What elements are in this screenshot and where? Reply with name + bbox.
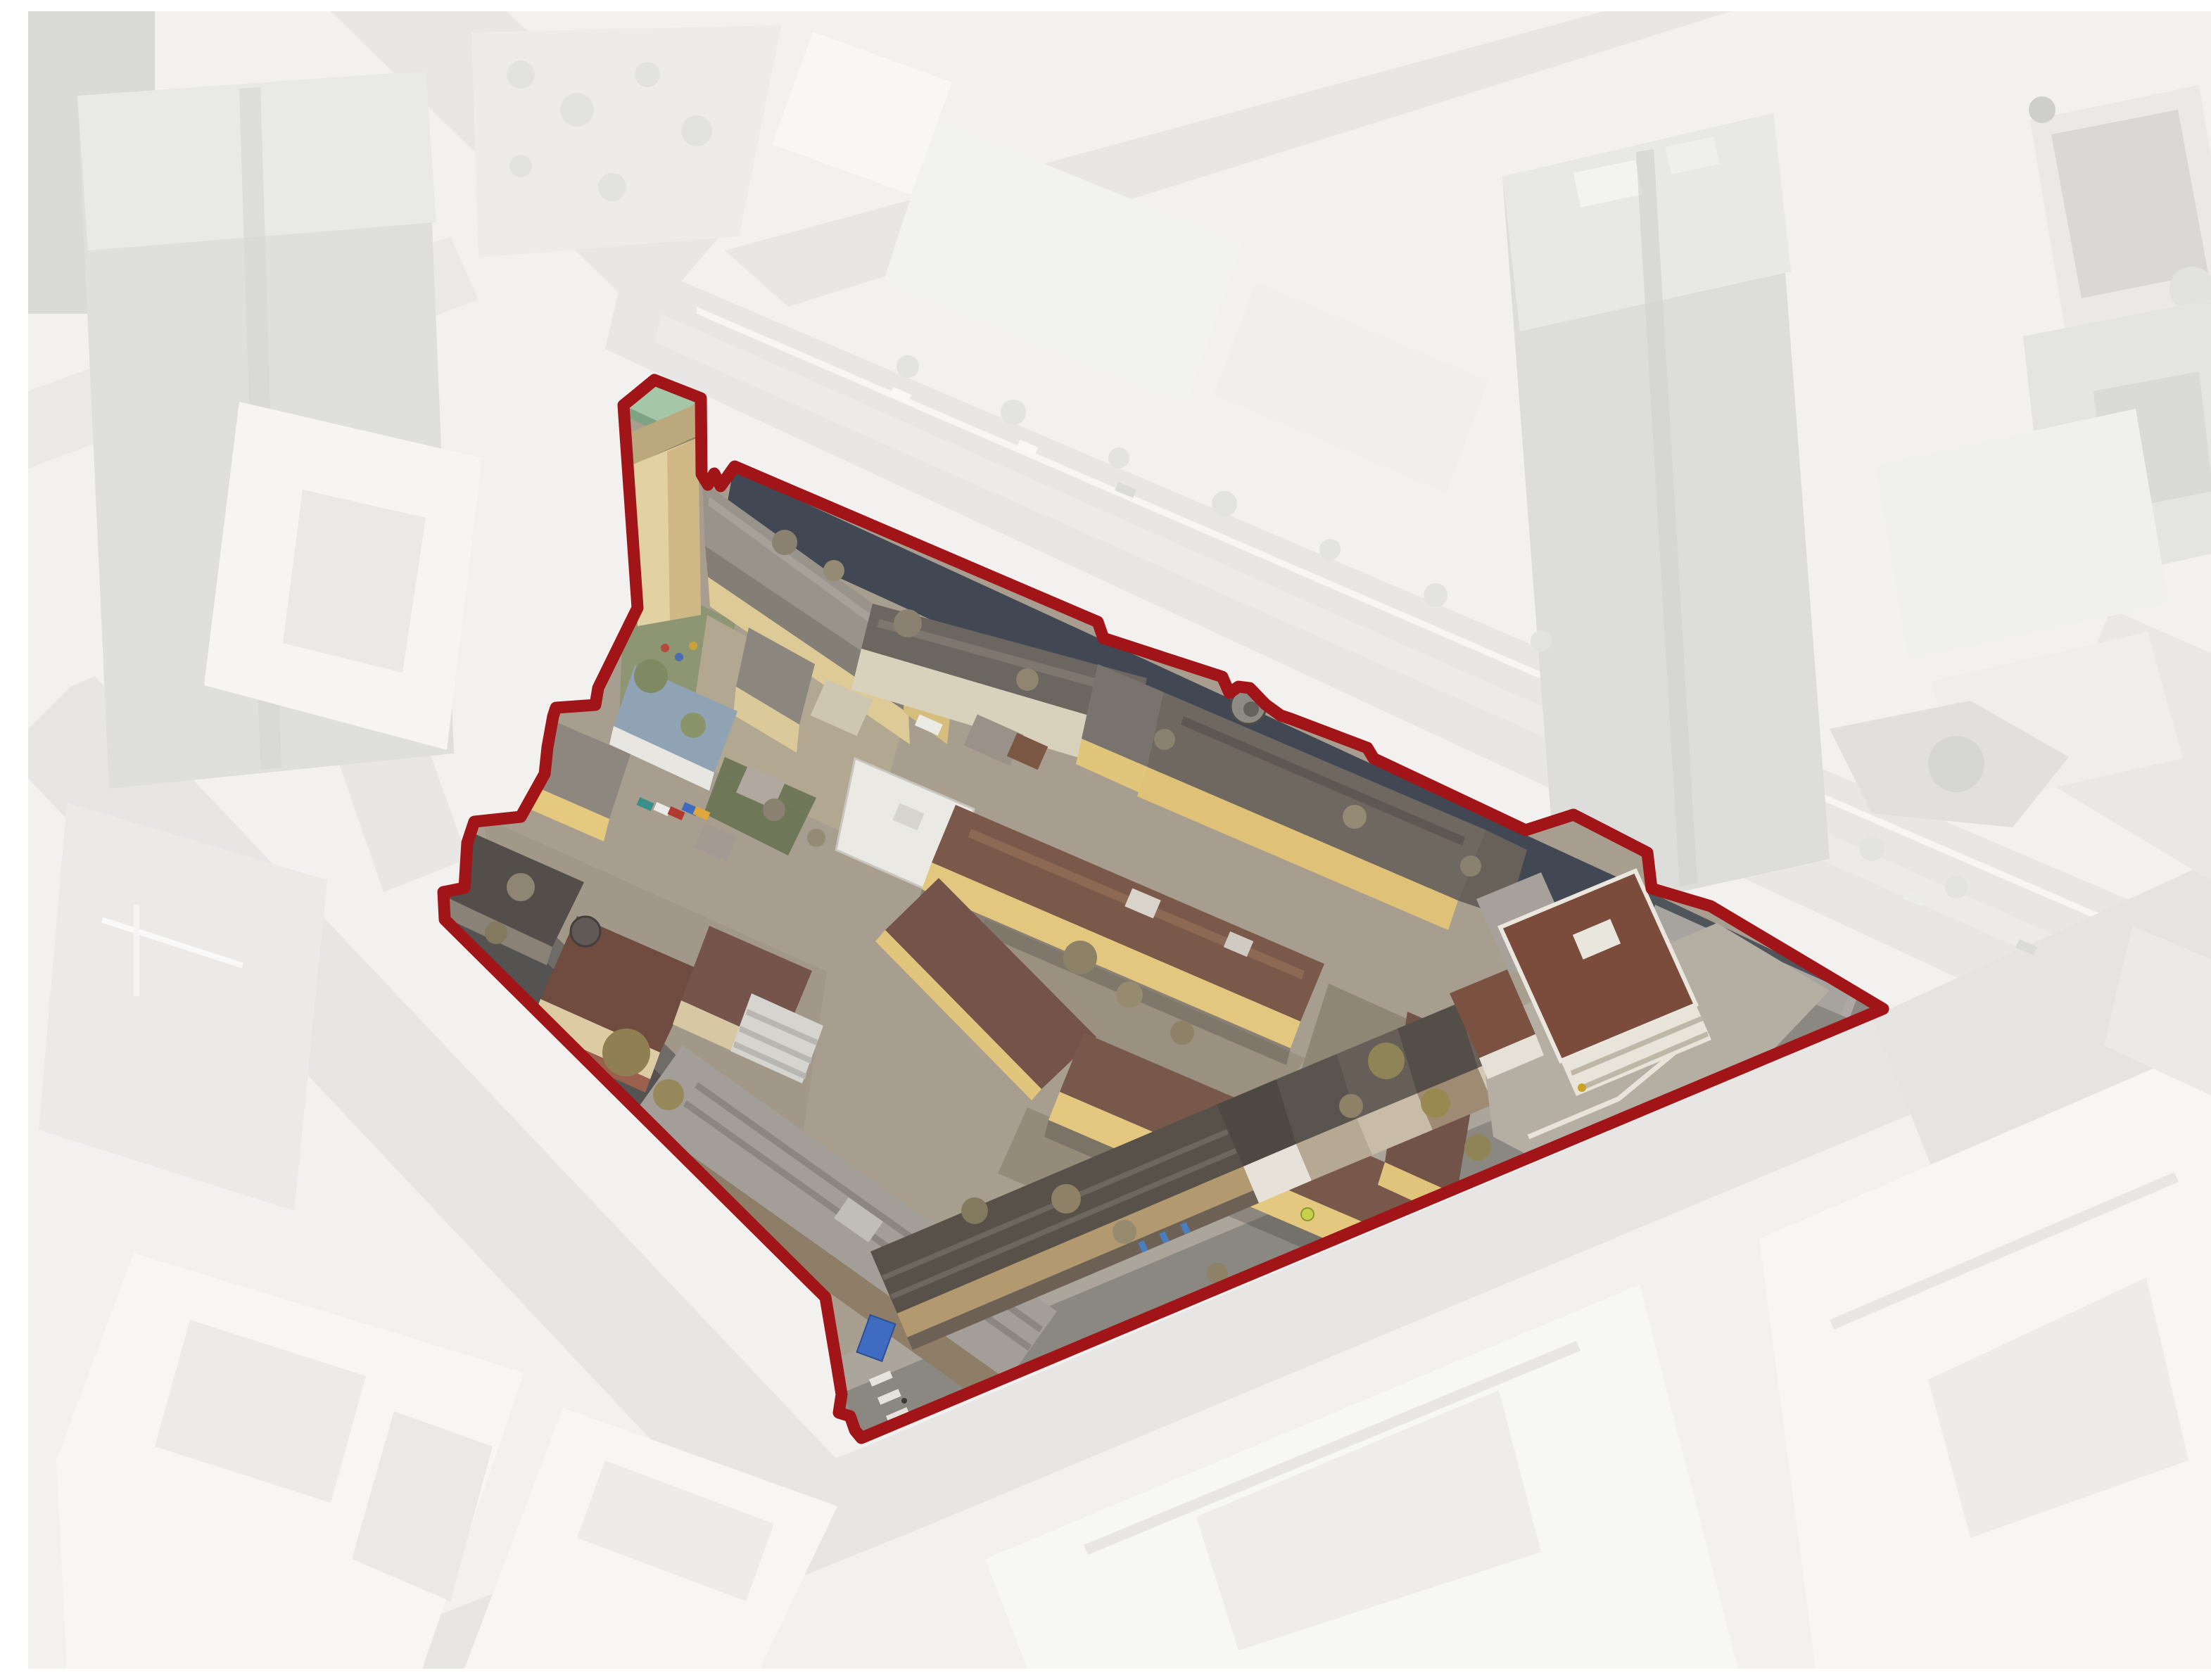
- advertising-column: [1301, 1208, 1314, 1221]
- tree: [1339, 1094, 1363, 1118]
- tree: [1464, 1134, 1491, 1161]
- tree: [1421, 1088, 1450, 1118]
- aerial-photo-svg: [28, 11, 2211, 1669]
- playground-item: [675, 653, 683, 661]
- tree-large-olive: [602, 1029, 650, 1076]
- tree: [680, 713, 706, 738]
- playground-item: [661, 644, 669, 652]
- tree: [1170, 1021, 1194, 1045]
- corner-turret: [571, 917, 600, 946]
- tree: [485, 922, 507, 944]
- tree: [961, 1197, 988, 1224]
- tree: [763, 798, 785, 821]
- tree: [1016, 668, 1039, 691]
- tree: [894, 609, 922, 637]
- pedestrian: [901, 1398, 907, 1404]
- tree: [1368, 1043, 1405, 1079]
- tree: [1154, 729, 1175, 750]
- tree: [634, 659, 668, 693]
- tree: [1063, 941, 1097, 974]
- tree: [1051, 1184, 1081, 1214]
- tree: [653, 1079, 684, 1110]
- office-logo: [1578, 1083, 1586, 1092]
- tree: [507, 873, 535, 901]
- tree: [1116, 981, 1143, 1008]
- tree: [823, 560, 844, 581]
- tree: [772, 530, 797, 555]
- tree: [1343, 805, 1367, 829]
- aerial-map-figure: [28, 11, 2211, 1669]
- playground-item: [689, 642, 697, 650]
- tree: [1460, 855, 1481, 877]
- tree: [807, 829, 825, 847]
- tree: [1113, 1220, 1136, 1244]
